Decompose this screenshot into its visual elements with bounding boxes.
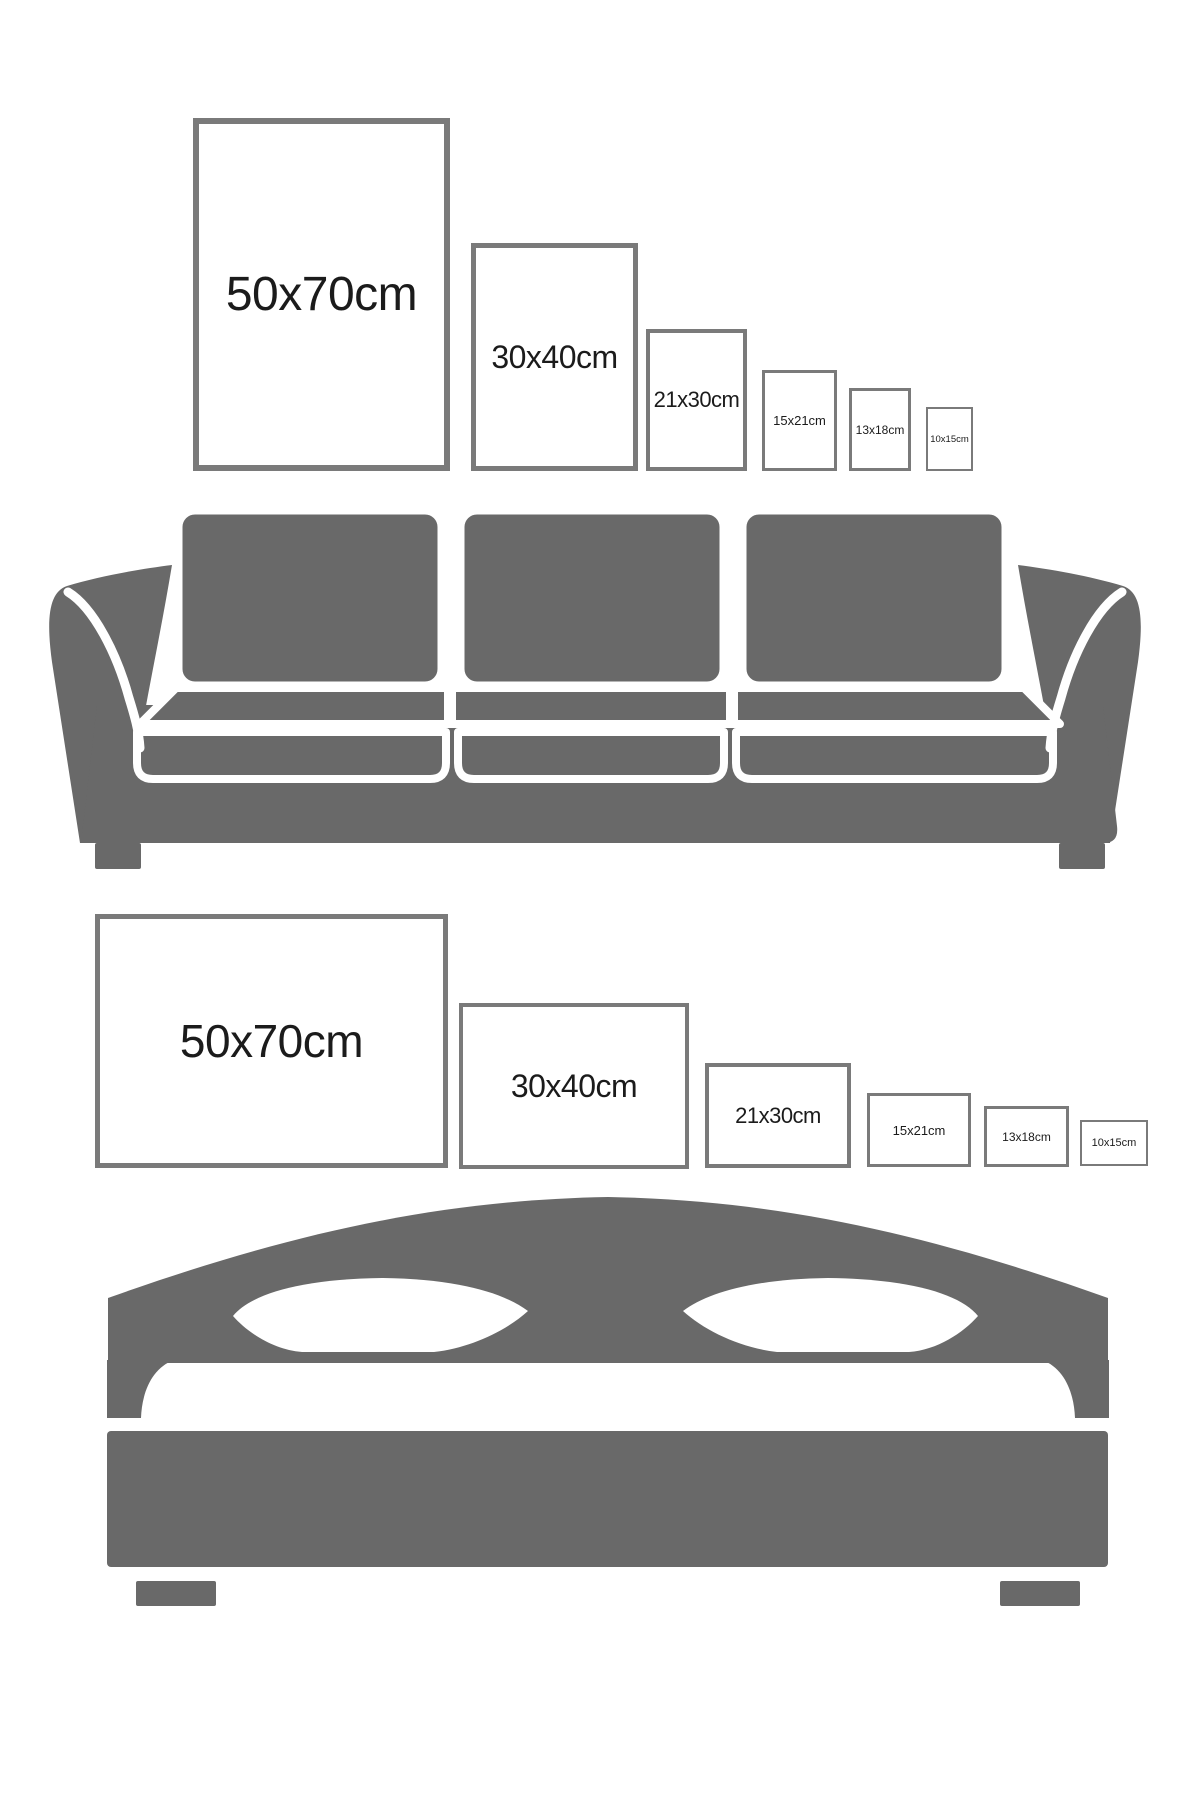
sofa-illustration: [49, 510, 1141, 869]
sofa-left-foot: [95, 843, 141, 869]
sofa-seat-deck: [140, 688, 1060, 724]
sofa-deck-divider: [444, 682, 456, 728]
bed-base: [107, 1431, 1108, 1567]
bed-left-leg: [107, 1360, 174, 1418]
sofa-seat-cushion: [137, 732, 446, 779]
sofa-back-cushion: [460, 510, 724, 686]
bed-right-leg: [1042, 1360, 1109, 1418]
bed-illustration: [107, 1197, 1109, 1606]
bed-headboard: [108, 1197, 1108, 1363]
furniture-illustrations: [0, 0, 1200, 1800]
size-guide-infographic: 50x70cm 30x40cm 21x30cm 15x21cm 13x18cm …: [0, 0, 1200, 1800]
sofa-back-cushion: [178, 510, 442, 686]
sofa-back-cushion: [742, 510, 1006, 686]
sofa-seat-cushion: [458, 732, 724, 779]
sofa-seat-cushion: [736, 732, 1053, 779]
bed-right-foot: [1000, 1581, 1080, 1606]
sofa-right-foot: [1059, 843, 1105, 869]
sofa-deck-divider: [726, 682, 738, 728]
bed-left-foot: [136, 1581, 216, 1606]
